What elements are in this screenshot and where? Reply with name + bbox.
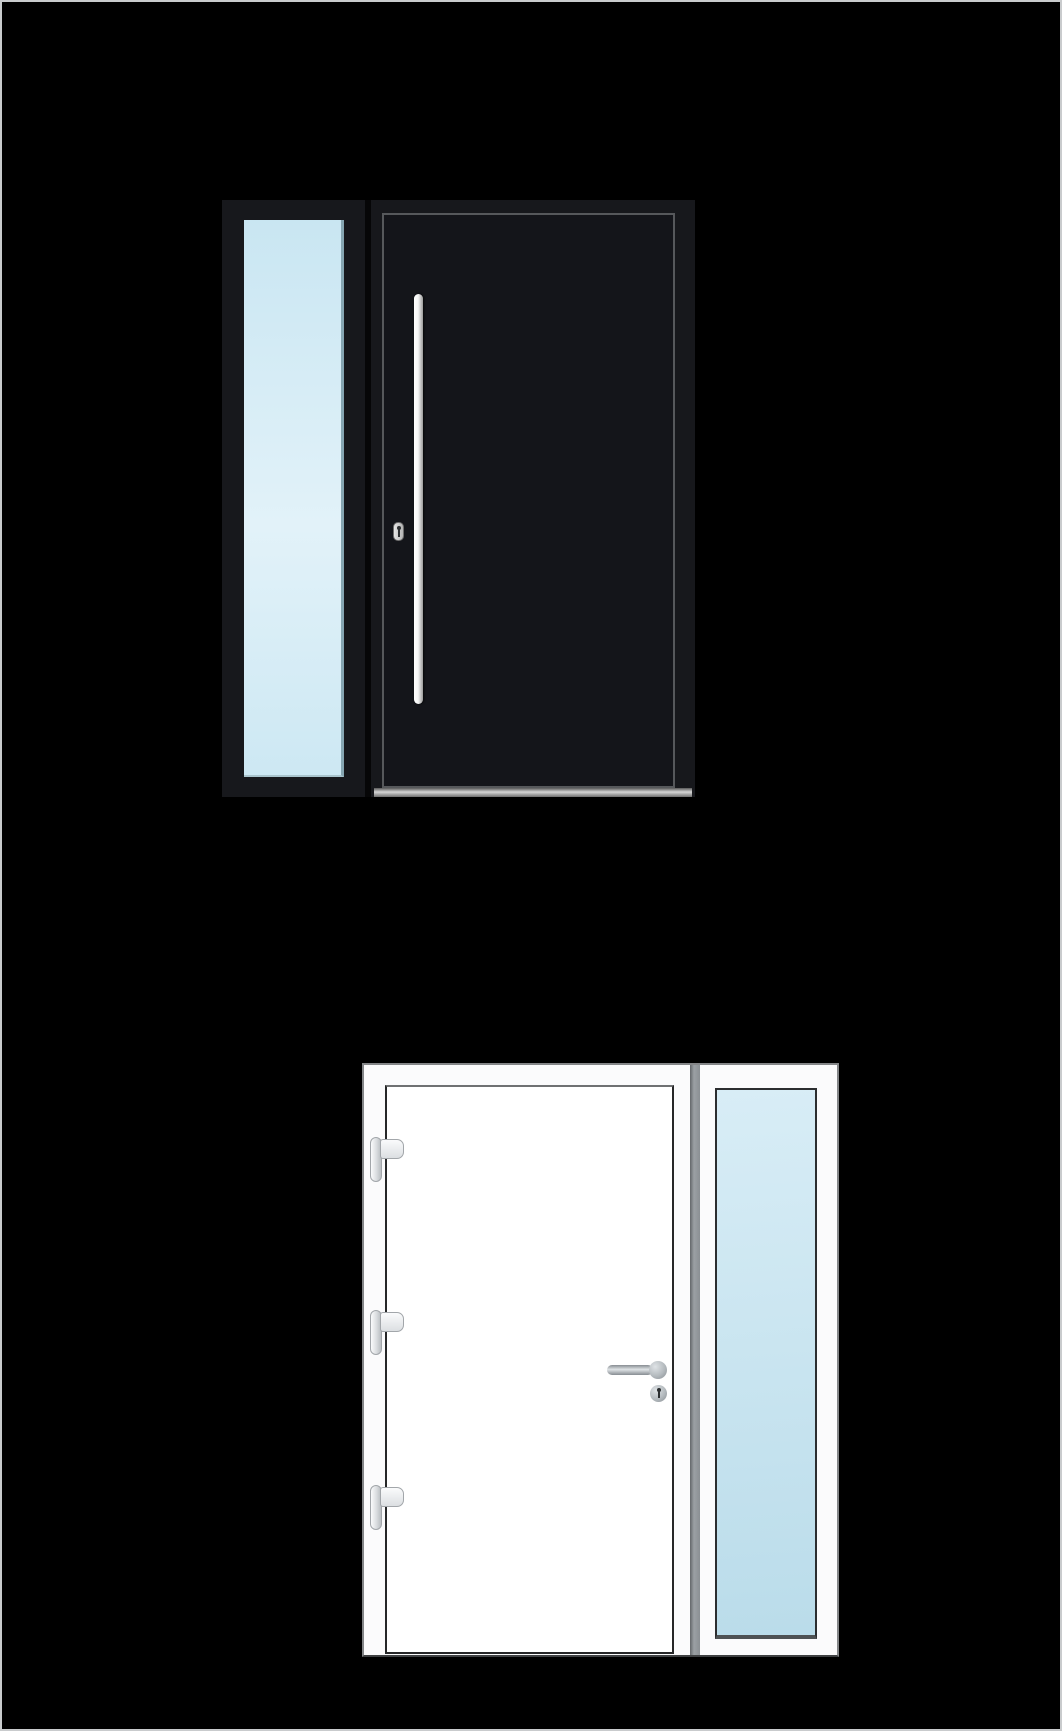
hinge-wing	[380, 1139, 404, 1159]
hinge-rail	[364, 1065, 690, 1655]
sidelight-frame-left	[222, 200, 365, 797]
catalog-canvas	[0, 0, 1062, 1731]
sidelight-glass	[244, 220, 344, 777]
hinge-wing	[380, 1487, 404, 1507]
hinge-wing	[380, 1312, 404, 1332]
sidelight-glass	[715, 1088, 817, 1639]
hinge-icon	[370, 1310, 406, 1355]
sidelight-frame-right	[700, 1065, 837, 1655]
handle-rose-icon	[649, 1361, 667, 1379]
lock-cylinder-icon	[650, 1385, 667, 1402]
door-frame-dark	[371, 200, 695, 797]
keyhole-lock-icon	[393, 522, 404, 541]
door-frame-white	[364, 1065, 690, 1655]
product-white-entry-door[interactable]	[362, 1063, 839, 1657]
hinge-icon	[370, 1485, 406, 1530]
product-dark-entry-door[interactable]	[222, 200, 695, 797]
threshold-sill	[374, 788, 692, 797]
frame-divider	[690, 1065, 700, 1655]
lever-handle-icon	[607, 1365, 653, 1375]
hinge-icon	[370, 1137, 406, 1182]
bar-pull-handle-icon	[414, 294, 423, 704]
door-leaf-dark	[382, 213, 675, 788]
